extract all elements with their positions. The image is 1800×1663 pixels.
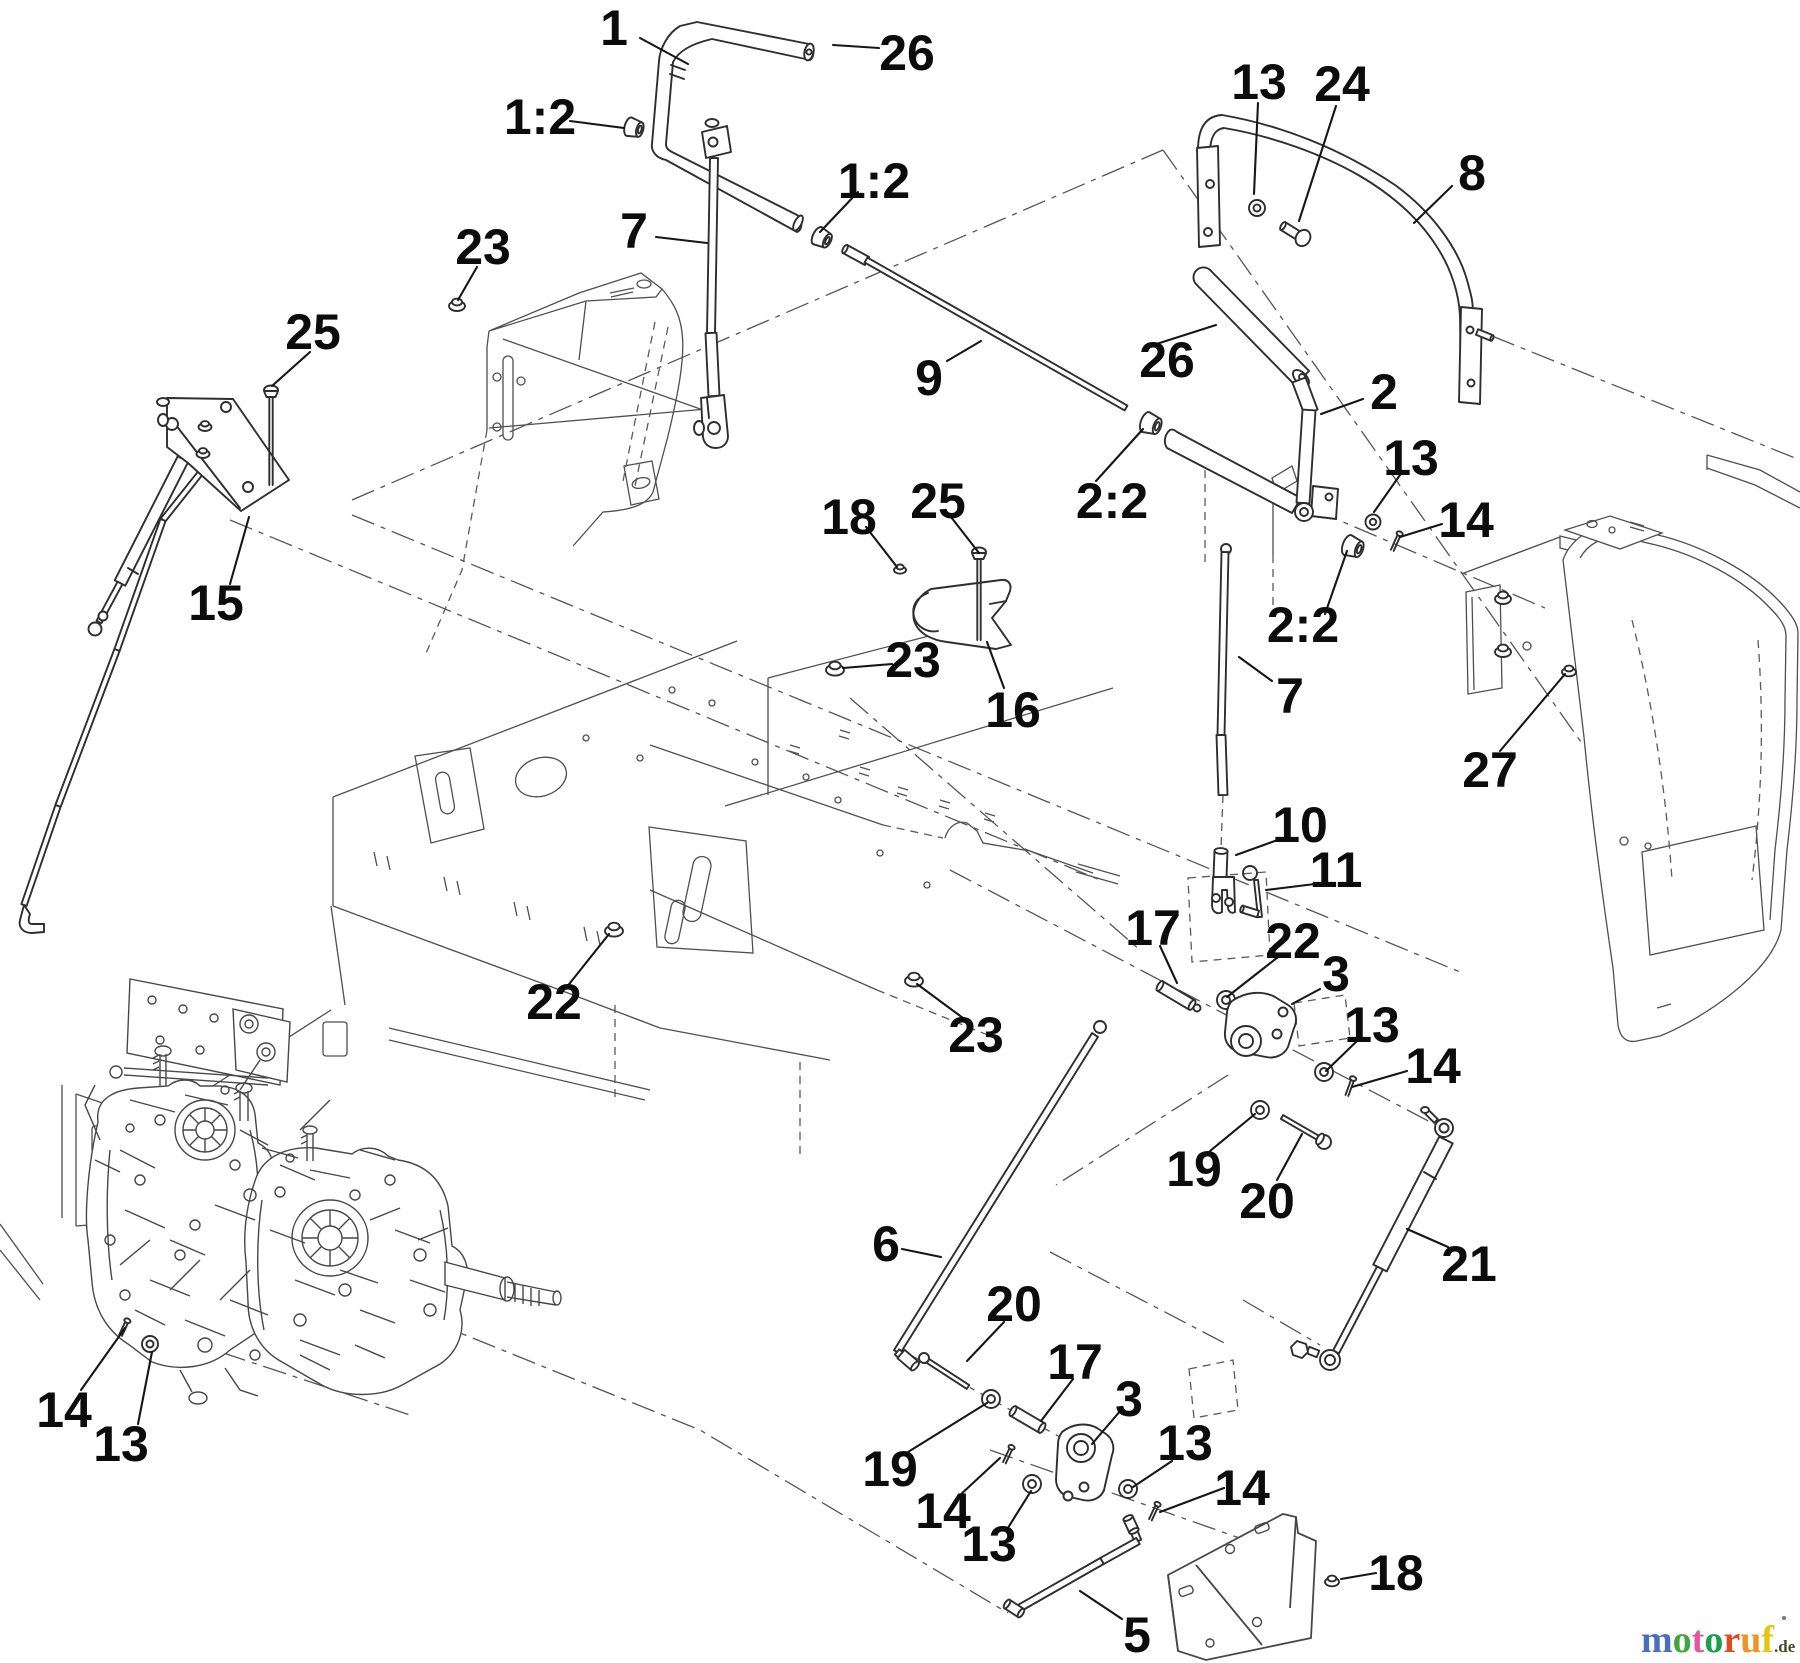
svg-text:24: 24	[1314, 56, 1370, 112]
svg-text:27: 27	[1462, 742, 1518, 798]
svg-text:1: 1	[600, 0, 628, 56]
svg-text:3: 3	[1322, 946, 1350, 1002]
svg-text:1:2: 1:2	[504, 89, 576, 145]
svg-text:15: 15	[188, 575, 244, 631]
svg-text:9: 9	[915, 350, 943, 406]
svg-text:3: 3	[1115, 1371, 1143, 1427]
svg-text:20: 20	[986, 1276, 1042, 1332]
svg-text:23: 23	[885, 632, 941, 688]
svg-text:19: 19	[1166, 1141, 1222, 1197]
svg-text:7: 7	[1276, 668, 1304, 724]
svg-text:13: 13	[1383, 430, 1439, 486]
svg-text:17: 17	[1047, 1334, 1103, 1390]
svg-text:14: 14	[1438, 492, 1494, 548]
svg-text:13: 13	[1344, 997, 1400, 1053]
svg-text:26: 26	[879, 25, 935, 81]
svg-text:7: 7	[620, 203, 648, 259]
svg-text:13: 13	[1231, 54, 1287, 110]
svg-text:23: 23	[948, 1007, 1004, 1063]
svg-text:2:2: 2:2	[1267, 597, 1339, 653]
svg-text:5: 5	[1123, 1607, 1151, 1663]
svg-text:2:2: 2:2	[1076, 473, 1148, 529]
svg-text:20: 20	[1239, 1173, 1295, 1229]
svg-text:21: 21	[1441, 1236, 1497, 1292]
svg-text:25: 25	[910, 473, 966, 529]
svg-text:23: 23	[455, 219, 511, 275]
svg-text:19: 19	[862, 1441, 918, 1497]
svg-text:25: 25	[285, 304, 341, 360]
svg-text:18: 18	[1368, 1545, 1424, 1601]
svg-text:1:2: 1:2	[838, 153, 910, 209]
svg-text:18: 18	[821, 489, 877, 545]
svg-text:13: 13	[961, 1516, 1017, 1572]
svg-text:13: 13	[93, 1416, 149, 1472]
svg-text:13: 13	[1157, 1415, 1213, 1471]
svg-text:motoruf.de: motoruf.de	[1641, 1619, 1796, 1661]
svg-text:22: 22	[526, 974, 582, 1030]
svg-text:17: 17	[1125, 900, 1181, 956]
svg-text:6: 6	[872, 1216, 900, 1272]
svg-text:16: 16	[985, 682, 1041, 738]
svg-text:11: 11	[1310, 842, 1363, 898]
svg-text:14: 14	[1405, 1038, 1461, 1094]
svg-text:2: 2	[1370, 364, 1398, 420]
svg-text:14: 14	[36, 1382, 92, 1438]
svg-text:8: 8	[1458, 145, 1486, 201]
svg-text:22: 22	[1265, 913, 1321, 969]
svg-text:14: 14	[1214, 1460, 1270, 1516]
svg-text:26: 26	[1139, 332, 1195, 388]
